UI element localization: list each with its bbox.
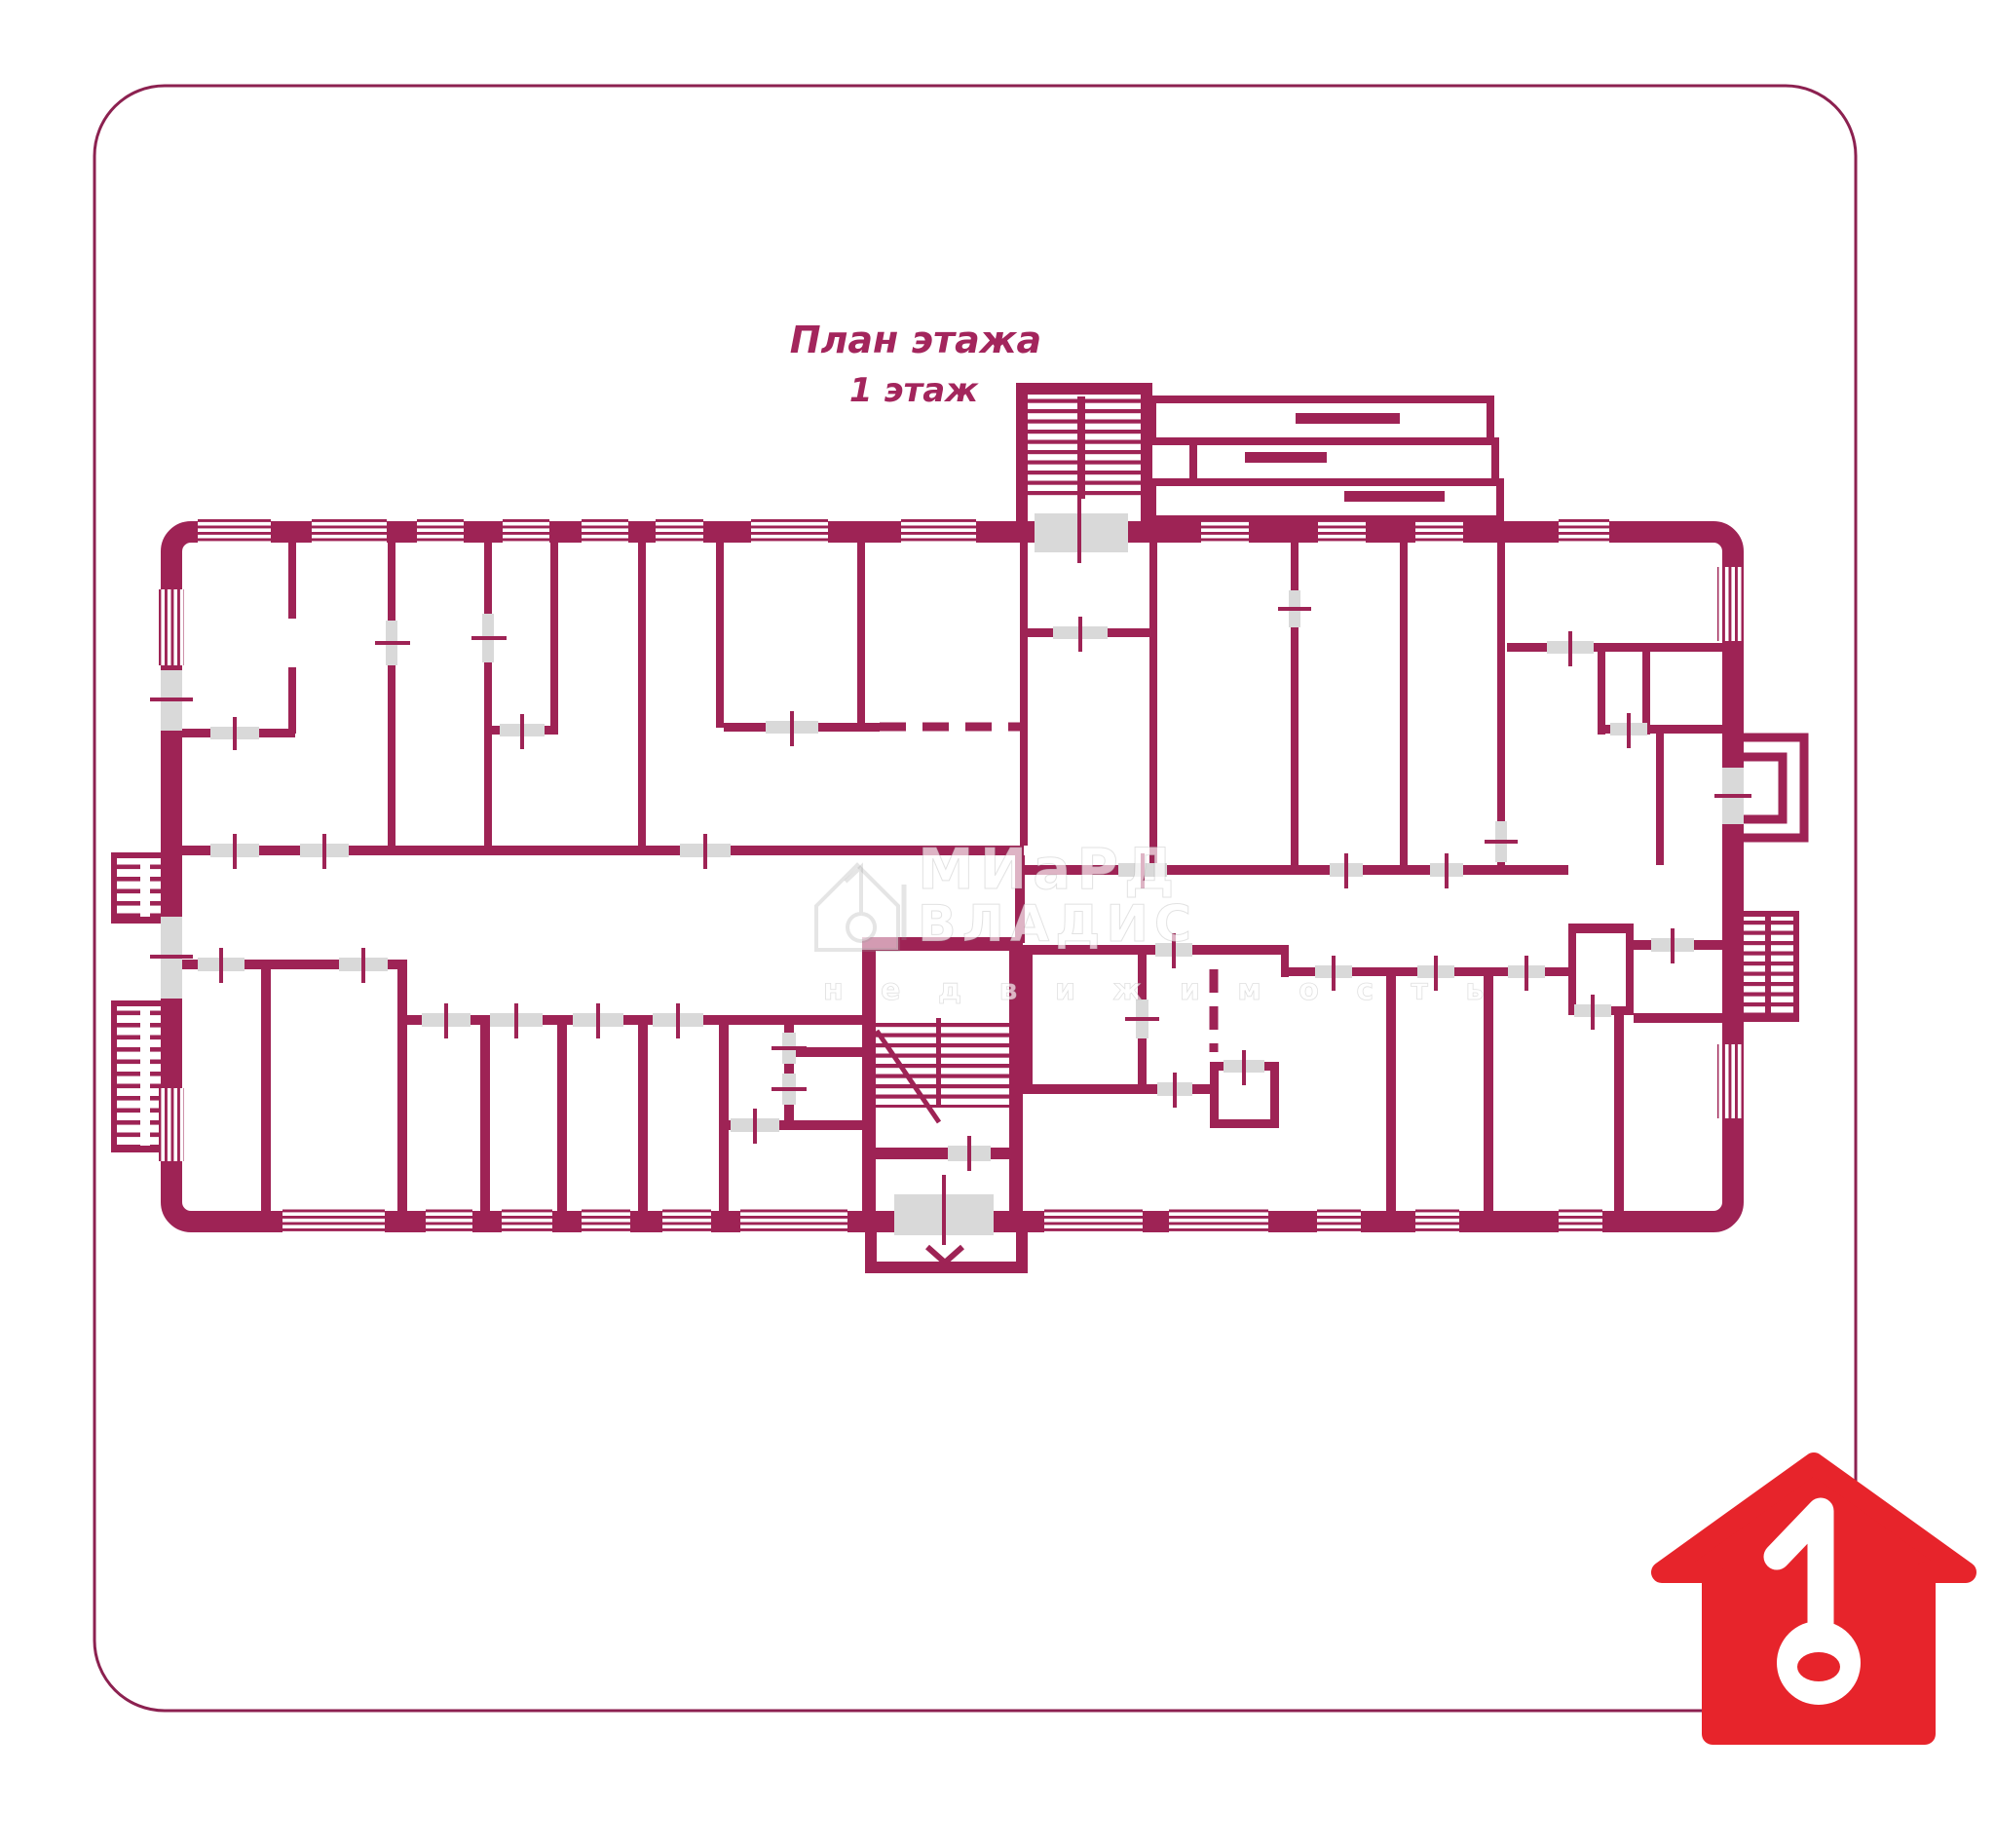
floor-label: 1 этаж [849, 371, 979, 410]
logo-key-hole [1797, 1652, 1840, 1681]
floor-plan-page: План этажа 1 этаж [0, 0, 1995, 1848]
right-ladder [1740, 914, 1796, 1019]
watermark-brand-1: МИаРД [918, 836, 1181, 902]
page-title: План этажа [790, 319, 1041, 361]
watermark-tagline: н е д в и ж и м о с т ь [823, 973, 1497, 1007]
watermark-brand-2: ВЛАДИС [918, 895, 1197, 954]
